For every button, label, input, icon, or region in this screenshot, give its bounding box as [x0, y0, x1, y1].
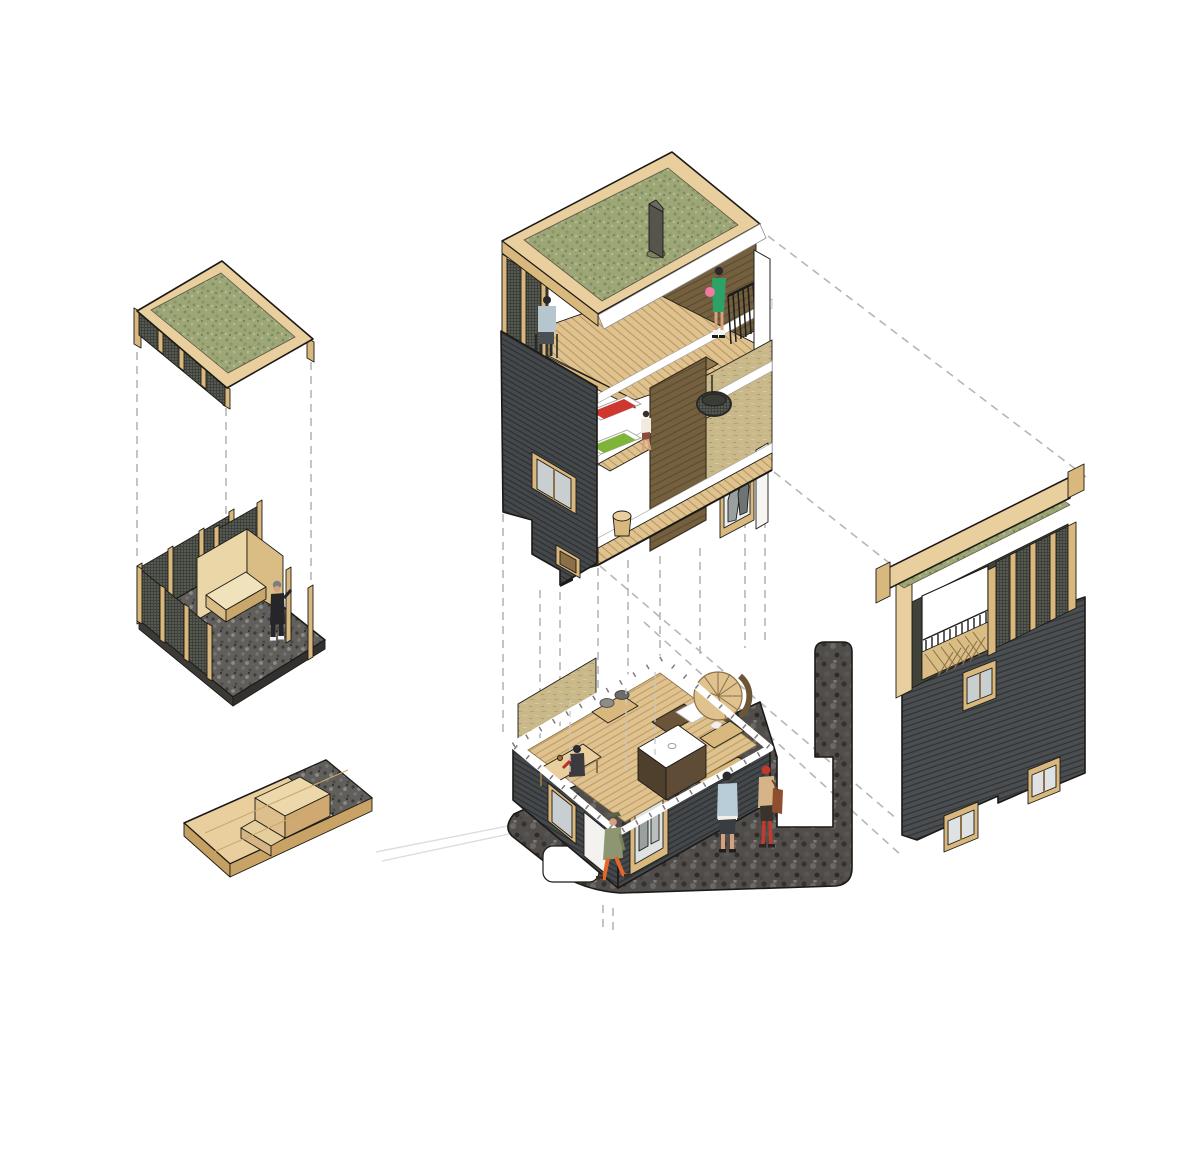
facade-cornice-wing-right [1068, 464, 1084, 498]
facade-cornice-wing-left [876, 562, 890, 603]
room-post-right1 [286, 567, 291, 643]
tower-chimney [647, 200, 665, 258]
exploded-roof-panel [134, 261, 314, 409]
diagram-svg [0, 0, 1200, 1170]
construction-room [137, 500, 325, 706]
tower-cutaway [501, 152, 772, 586]
guide-diag-mid [774, 472, 893, 566]
tower-barrel-stool [613, 511, 631, 536]
ground-floor-plan [508, 642, 852, 893]
facade-elevation [876, 464, 1085, 852]
slab-alignment-lines [376, 826, 509, 861]
room-post-right2 [308, 585, 313, 660]
foundation-deck [0, 0, 372, 877]
guide-diag-top [768, 236, 1086, 477]
exploded-axonometric-diagram [0, 0, 1200, 1170]
